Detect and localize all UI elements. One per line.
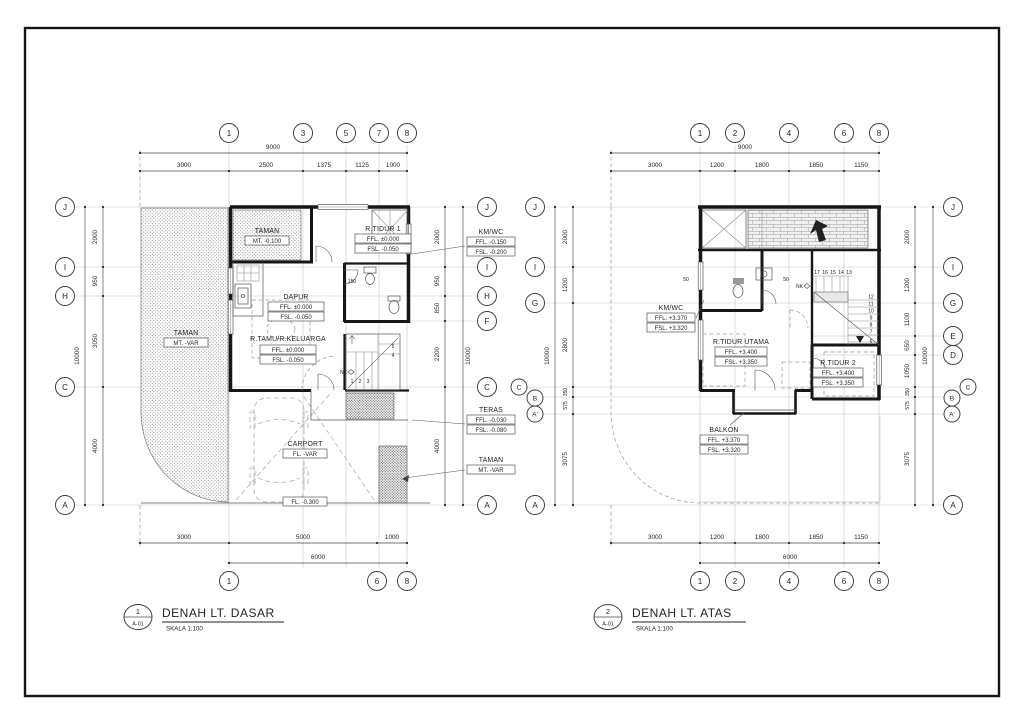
room-label-taman-right: TAMAN <box>479 457 504 464</box>
stairs-ground <box>346 334 400 390</box>
grid-bubble: H <box>62 292 68 301</box>
room-label-rtamu: R.TAMU/R.KELUARGA <box>250 336 326 343</box>
dim-overall-bottom: 6000 <box>311 554 326 561</box>
nk-label: NK <box>340 370 348 376</box>
dim-50: 50 <box>683 277 689 283</box>
ffl-rtamu: FFL. ±0.000 <box>272 348 305 354</box>
grid-bubble: 7 <box>377 129 382 138</box>
grid-bubble: 1 <box>227 577 232 586</box>
nk-marker-icon <box>804 284 810 289</box>
level-taman-right: MT. -VAR <box>478 468 504 474</box>
dim-overall-east: 10000 <box>465 347 472 365</box>
grid-bubble: B <box>533 396 538 403</box>
ffl-kmwc: FFL. -0.150 <box>475 240 507 246</box>
dim-overall-bottom: 6000 <box>783 554 798 561</box>
dim-seg: 1150 <box>854 162 868 169</box>
ffl-balkon: FFL. +3.370 <box>708 438 741 444</box>
grid-bubble: A <box>62 501 68 510</box>
grid-bubble: J <box>533 203 537 212</box>
grid-bubble: J <box>63 203 67 212</box>
dim-overall-top: 9000 <box>738 144 753 151</box>
room-label-rtidur1: R.TIDUR 1 <box>365 226 401 233</box>
grid-bubble: A' <box>532 412 538 419</box>
level-carport: FL. -VAR <box>293 452 318 458</box>
floor-plan-drawing: TAMAN MT. -0.100 R.TIDUR 1 FFL. ±0.000 F… <box>0 0 1024 724</box>
stair-num: 16 <box>822 270 828 276</box>
grid-bubble: 8 <box>877 129 882 138</box>
dim-overall-top: 9000 <box>266 144 281 151</box>
level-taman-left: MT. -VAR <box>173 341 199 347</box>
dim-seg: 350 <box>563 388 569 397</box>
dim-seg: 1850 <box>809 162 824 169</box>
grid-bubble: C <box>517 385 522 392</box>
dim-seg: 3000 <box>177 534 192 541</box>
grid-bubble: F <box>485 317 490 326</box>
ground-floor-plan: TAMAN MT. -0.100 R.TIDUR 1 FFL. ±0.000 F… <box>56 124 516 633</box>
stair-num: 11 <box>868 302 873 308</box>
grid-bubble: C <box>966 385 971 392</box>
fsl-rtamu: FSL. -0.050 <box>272 358 304 364</box>
grid-bubble: G <box>950 299 956 308</box>
grid-bubble: 6 <box>842 577 847 586</box>
dim-seg: 1150 <box>854 534 868 541</box>
stair-num: 6 <box>870 339 873 345</box>
fsl-kmwc2: FSL. +3.320 <box>655 326 689 332</box>
dim-seg: 5000 <box>296 534 311 541</box>
room-label-carport: CARPORT <box>288 441 324 448</box>
stair-num: 2 <box>359 379 362 385</box>
dim-seg: 1000 <box>386 162 401 169</box>
dim-seg: 2000 <box>434 229 441 244</box>
stair-num: 9 <box>870 316 873 322</box>
grid-bubble: C <box>62 383 68 392</box>
dim-seg: 2200 <box>434 346 441 361</box>
grid-bubble: 6 <box>375 577 380 586</box>
garden-hatch-left <box>141 208 228 502</box>
stair-num: 13 <box>846 270 852 276</box>
grid-bubble: 8 <box>405 129 410 138</box>
dim-seg: 4000 <box>434 438 441 453</box>
title-block-ground: 1 A-01 DENAH LT. DASAR SKALA 1:100 <box>124 605 284 633</box>
dim-seg: 350 <box>905 388 911 397</box>
garden-hatch-top <box>233 210 301 260</box>
grid-bubble: J <box>485 203 489 212</box>
grid-bubble: I <box>64 263 66 272</box>
dim-seg: 650 <box>904 340 911 351</box>
room-label-teras: TERAS <box>479 407 503 414</box>
drawing-sheet: TAMAN MT. -0.100 R.TIDUR 1 FFL. ±0.000 F… <box>0 0 1024 724</box>
stair-num: 8 <box>870 323 873 329</box>
dim-seg: 2000 <box>562 229 569 244</box>
dim-seg: 575 <box>563 401 569 410</box>
dim-seg: 3000 <box>648 534 663 541</box>
dim-seg: 1375 <box>317 162 332 169</box>
dim-overall-west: 10000 <box>544 347 551 365</box>
toilet-icon <box>733 268 772 298</box>
ffl-kmwc2: FFL. +3.370 <box>655 316 688 322</box>
grid-bubble: 8 <box>877 577 882 586</box>
grid-bubble: 1 <box>227 129 232 138</box>
fsl-teras: FSL. -0.080 <box>475 428 507 434</box>
room-label-kmwc2: KM/WC <box>659 305 684 312</box>
room-label-rtidur2: R.TIDUR 2 <box>820 360 856 367</box>
dim-seg: 1800 <box>755 534 770 541</box>
fsl-dapur: FSL. -0.050 <box>280 315 312 321</box>
plan-scale: SKALA 1:100 <box>166 626 203 633</box>
dim-seg: 2000 <box>904 229 911 244</box>
grid-bubble: G <box>532 299 538 308</box>
grid-bubble: 3 <box>301 129 306 138</box>
dim-150: 150 <box>348 279 357 285</box>
grid-bubble: 2 <box>733 577 738 586</box>
grid-bubble: 5 <box>344 129 349 138</box>
grid-bubble: A <box>950 501 956 510</box>
grid-bubble: J <box>951 203 955 212</box>
planter-strip-entry <box>346 393 394 419</box>
detail-number: 1 <box>136 607 140 616</box>
stair-num: 14 <box>838 270 844 276</box>
dim-overall-east: 10000 <box>922 347 929 365</box>
toilet-icon <box>364 267 400 314</box>
grid-bubble: 1 <box>698 577 703 586</box>
dim-seg: 1850 <box>809 534 824 541</box>
grid-bubble: A' <box>949 412 955 419</box>
room-label-dapur: DAPUR <box>283 294 308 301</box>
plan-title: DENAH LT. ATAS <box>632 606 732 620</box>
room-label-taman-left: TAMAN <box>174 330 199 337</box>
dim-seg: 3050 <box>92 333 99 348</box>
dim-seg: 950 <box>434 275 441 286</box>
grid-bubble: C <box>484 383 490 392</box>
grid-bubble: 4 <box>787 129 792 138</box>
room-label-kmwc: KM/WC <box>479 229 504 236</box>
plan-title: DENAH LT. DASAR <box>162 606 275 620</box>
stair-num: 17 <box>814 270 820 276</box>
room-label-taman-top: TAMAN <box>255 228 280 235</box>
ffl-rtidur2: FFL. +3.400 <box>822 371 855 377</box>
fsl-rtidur1: FSL. -0.050 <box>367 247 399 253</box>
ffl-rtidur1: FFL. ±0.000 <box>367 237 400 243</box>
dim-seg: 1200 <box>710 162 725 169</box>
dim-seg: 1200 <box>562 277 569 292</box>
dim-seg: 1200 <box>904 277 911 292</box>
grid-bubble: B <box>950 396 955 403</box>
dim-seg: 1000 <box>385 534 400 541</box>
grid-bubble: 8 <box>405 577 410 586</box>
dim-overall-west: 10000 <box>74 347 81 365</box>
dim-seg: 1200 <box>710 534 725 541</box>
stair-num: 15 <box>830 270 836 276</box>
dim-seg: 1050 <box>904 363 911 378</box>
roof-strip <box>702 210 868 248</box>
dim-seg: 1100 <box>904 312 911 326</box>
dim-seg: 4000 <box>92 438 99 453</box>
grid-bubble: I <box>952 263 954 272</box>
dim-seg: 1125 <box>355 162 369 169</box>
grid-bubble: I <box>486 263 488 272</box>
nk-label: NK <box>796 284 804 290</box>
stair-num: 4 <box>392 353 395 359</box>
grid-bubble: 6 <box>842 129 847 138</box>
dim-50: 50 <box>783 277 789 283</box>
grid-bubble: A <box>484 501 490 510</box>
stair-num: 10 <box>868 309 874 315</box>
dim-seg: 1800 <box>755 162 770 169</box>
stair-num: 12 <box>868 295 874 301</box>
title-block-upper: 2 A-01 DENAH LT. ATAS SKALA 1:100 <box>594 605 746 633</box>
dim-seg: 3000 <box>648 162 663 169</box>
fsl-balkon: FSL. +3.320 <box>708 448 742 454</box>
nk-marker-icon <box>348 370 354 375</box>
dim-seg: 3075 <box>904 451 911 466</box>
upper-floor-plan: 17 16 15 14 13 12 11 10 9 8 7 6 NK 50 50… <box>511 124 976 633</box>
plan-scale: SKALA 1:100 <box>636 626 673 633</box>
sheet-number: A-01 <box>132 622 144 628</box>
grid-bubble: H <box>484 292 490 301</box>
room-label-balkon: BALKON <box>709 427 738 434</box>
sheet-number: A-01 <box>602 622 614 628</box>
balcony-walls <box>733 390 796 414</box>
stair-num: 5 <box>392 344 395 350</box>
level-fl-low: FL. -0.300 <box>291 500 319 506</box>
stair-num: 3 <box>367 379 370 385</box>
dim-seg: 2000 <box>92 229 99 244</box>
dim-seg: 2800 <box>562 337 569 352</box>
stair-num: 7 <box>870 330 873 336</box>
fsl-utama: FSL. +3.350 <box>725 360 759 366</box>
grid-bubble: A <box>532 501 538 510</box>
grid-bubble: D <box>950 351 956 360</box>
dim-seg: 950 <box>92 275 99 286</box>
grid-bubble: I <box>534 263 536 272</box>
grid-bubble: 1 <box>698 129 703 138</box>
fsl-kmwc: FSL. -0.200 <box>475 250 507 256</box>
dim-seg: 3075 <box>562 451 569 466</box>
ffl-utama: FFL. +3.400 <box>725 350 758 356</box>
dim-seg: 2500 <box>259 162 274 169</box>
detail-number: 2 <box>606 607 610 616</box>
level-taman-top: MT. -0.100 <box>253 239 282 245</box>
grid-bubble: E <box>950 332 955 341</box>
grid-bubble: 4 <box>787 577 792 586</box>
dim-seg: 3000 <box>177 162 192 169</box>
grid-bubble: 2 <box>733 129 738 138</box>
planter-strip-right <box>379 446 407 503</box>
stair-num: 1 <box>351 379 354 385</box>
room-label-utama: R.TIDUR UTAMA <box>713 339 769 346</box>
dim-seg: 575 <box>905 401 911 410</box>
ffl-dapur: FFL. ±0.000 <box>280 305 313 311</box>
kitchen-counter-icon <box>233 262 263 316</box>
dim-seg: 850 <box>434 302 441 313</box>
fsl-rtidur2: FSL. +3.350 <box>822 381 856 387</box>
ffl-teras: FFL. -0.030 <box>475 418 507 424</box>
